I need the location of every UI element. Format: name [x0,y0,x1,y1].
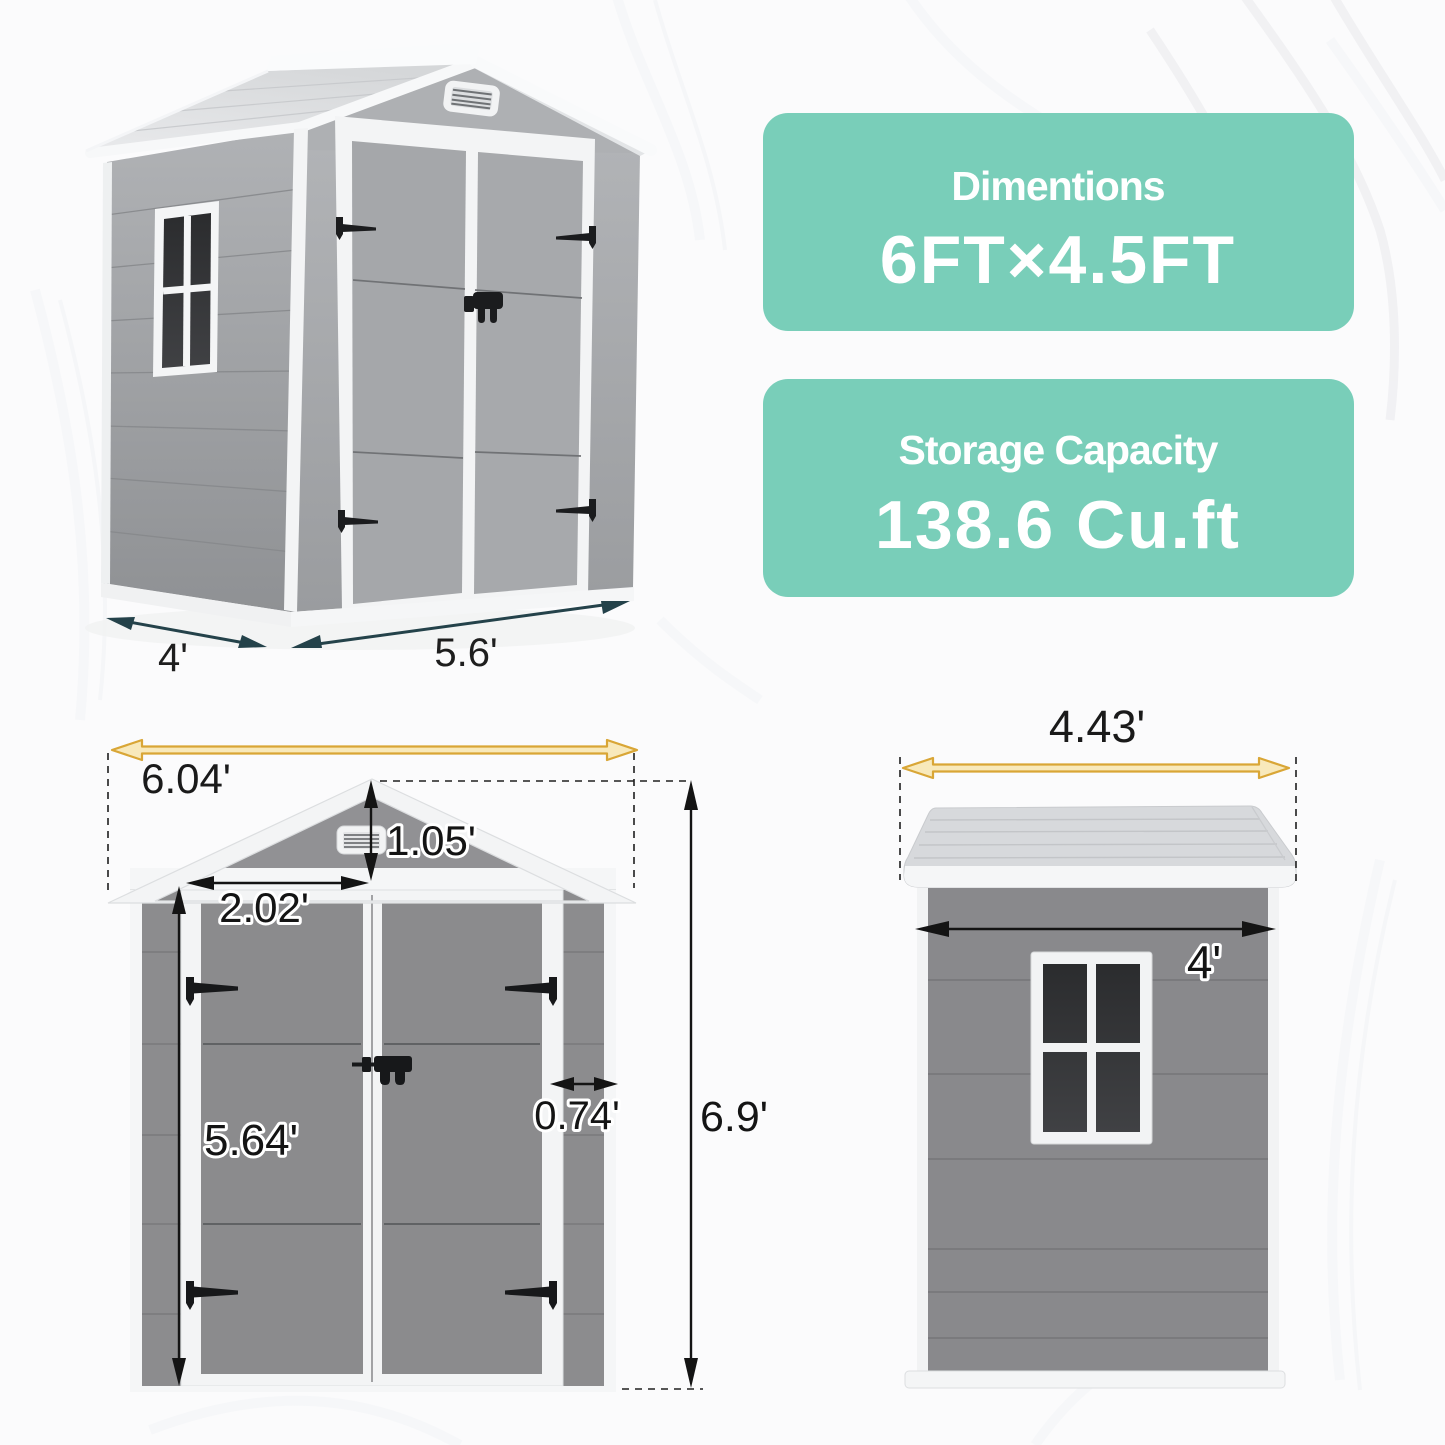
svg-text:1.05': 1.05' [386,817,476,864]
svg-text:5.6': 5.6' [434,631,497,675]
svg-text:6.04': 6.04' [141,755,231,802]
svg-text:138.6 Cu.ft: 138.6 Cu.ft [875,487,1241,563]
svg-text:6.9': 6.9' [700,1093,768,1141]
svg-text:2.02': 2.02' [219,884,309,931]
svg-text:5.64': 5.64' [204,1116,298,1165]
svg-text:Dimentions: Dimentions [951,163,1164,209]
svg-text:0.74': 0.74' [534,1094,620,1138]
svg-text:Storage Capacity: Storage Capacity [899,427,1219,473]
svg-text:4': 4' [1187,936,1221,988]
svg-text:6FT×4.5FT: 6FT×4.5FT [880,222,1236,298]
svg-text:4': 4' [158,636,188,680]
svg-text:4.43': 4.43' [1049,701,1145,752]
